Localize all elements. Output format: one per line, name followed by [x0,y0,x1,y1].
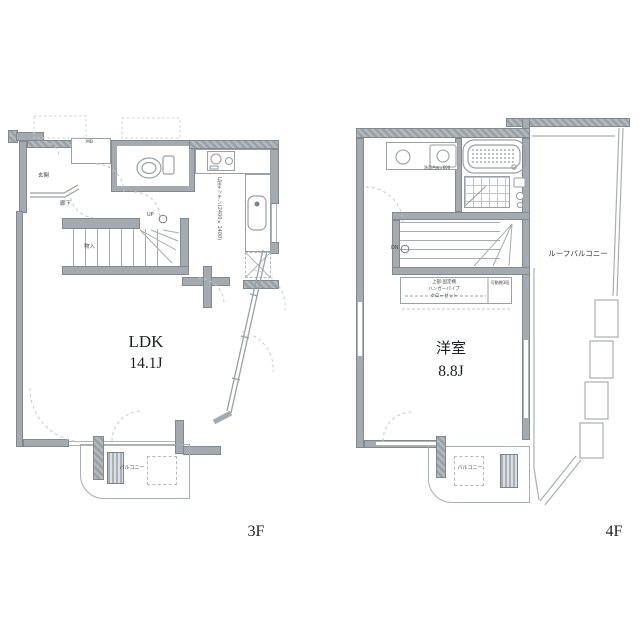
roof-balcony-railing [532,128,623,505]
up-marker-circle [159,215,167,223]
room-size-3f: 14.1J [106,356,186,372]
meter-box-label: MB [86,141,93,146]
spur-wall-vertical [203,266,212,308]
closet-name-label: クローゼット [402,295,486,300]
down-label: DN [391,246,399,251]
entry-step-line [30,185,79,197]
closet-pipe-label: ハンガーパイプ [402,288,486,293]
stair-bottom-wall-3f [62,266,189,275]
wall-top-4f [356,128,530,138]
stair-handrail-3f [62,218,140,229]
balcony-label-4f: バルコニー [448,466,492,471]
outdoor-unit-space-4f [454,456,484,486]
stove-box [207,151,235,171]
kitchen-counter-right [245,174,271,252]
hallway-label: 廊下 [60,202,71,208]
staircase-3f [62,229,168,266]
wall-top-kitchen [189,140,279,149]
room-label-4f: 洋室 [411,342,491,357]
wall-bottom-left-3f [23,439,69,447]
plan-linework [0,0,640,640]
movable-shelf-label: 可動棚3段 [489,281,511,285]
window-left-4f [357,302,363,356]
balcony-label-3f: バルコニー [110,466,154,471]
wall-right-top-3f [270,149,279,204]
refrigerator-space [245,252,271,278]
shower-floor [464,176,510,208]
room-size-4f: 8.8J [411,364,491,380]
washstand-label: 洗面台w=600 [424,166,450,170]
floorplan-canvas: 玄関 廊下 MB UP 物入 L型キッチン(2400×1400) LDK 14.… [0,0,640,640]
balcony-left-wall-4f [436,436,446,478]
room-label-3f: LDK [106,333,186,350]
roof-balcony-label: ルーフバルコニー [532,250,624,258]
eave-outline-dashes [34,116,180,138]
outdoor-unit-4f [500,454,518,488]
floor-label-4f: 4F [594,524,634,540]
closet-upper-label: 上部:固定棚 [402,281,486,286]
entry-label: 玄関 [38,174,49,180]
toilet-room-floor [117,146,189,186]
floor-label-3f: 3F [236,524,276,540]
window-right-3f [271,204,277,242]
kitchen-note-label: L型キッチン(2400×1400) [216,177,221,255]
wall-right-low-3f [270,242,279,254]
window-right-4f [523,340,529,418]
staircase-4f [400,222,500,267]
wall-flag-vertical [19,141,27,213]
stair-top-wall-4f [392,212,530,220]
storage-label: 物入 [84,245,95,251]
wall-below-fridge [243,280,279,289]
wall-left-3f [16,211,23,447]
wall-left-4f [356,138,364,448]
balcony-left-wall-3f [93,436,104,480]
bathtub-texture [471,148,515,165]
stair-bottom-wall-4f [392,267,530,275]
wall-top-entry [27,140,73,148]
up-label: UP [147,213,154,218]
